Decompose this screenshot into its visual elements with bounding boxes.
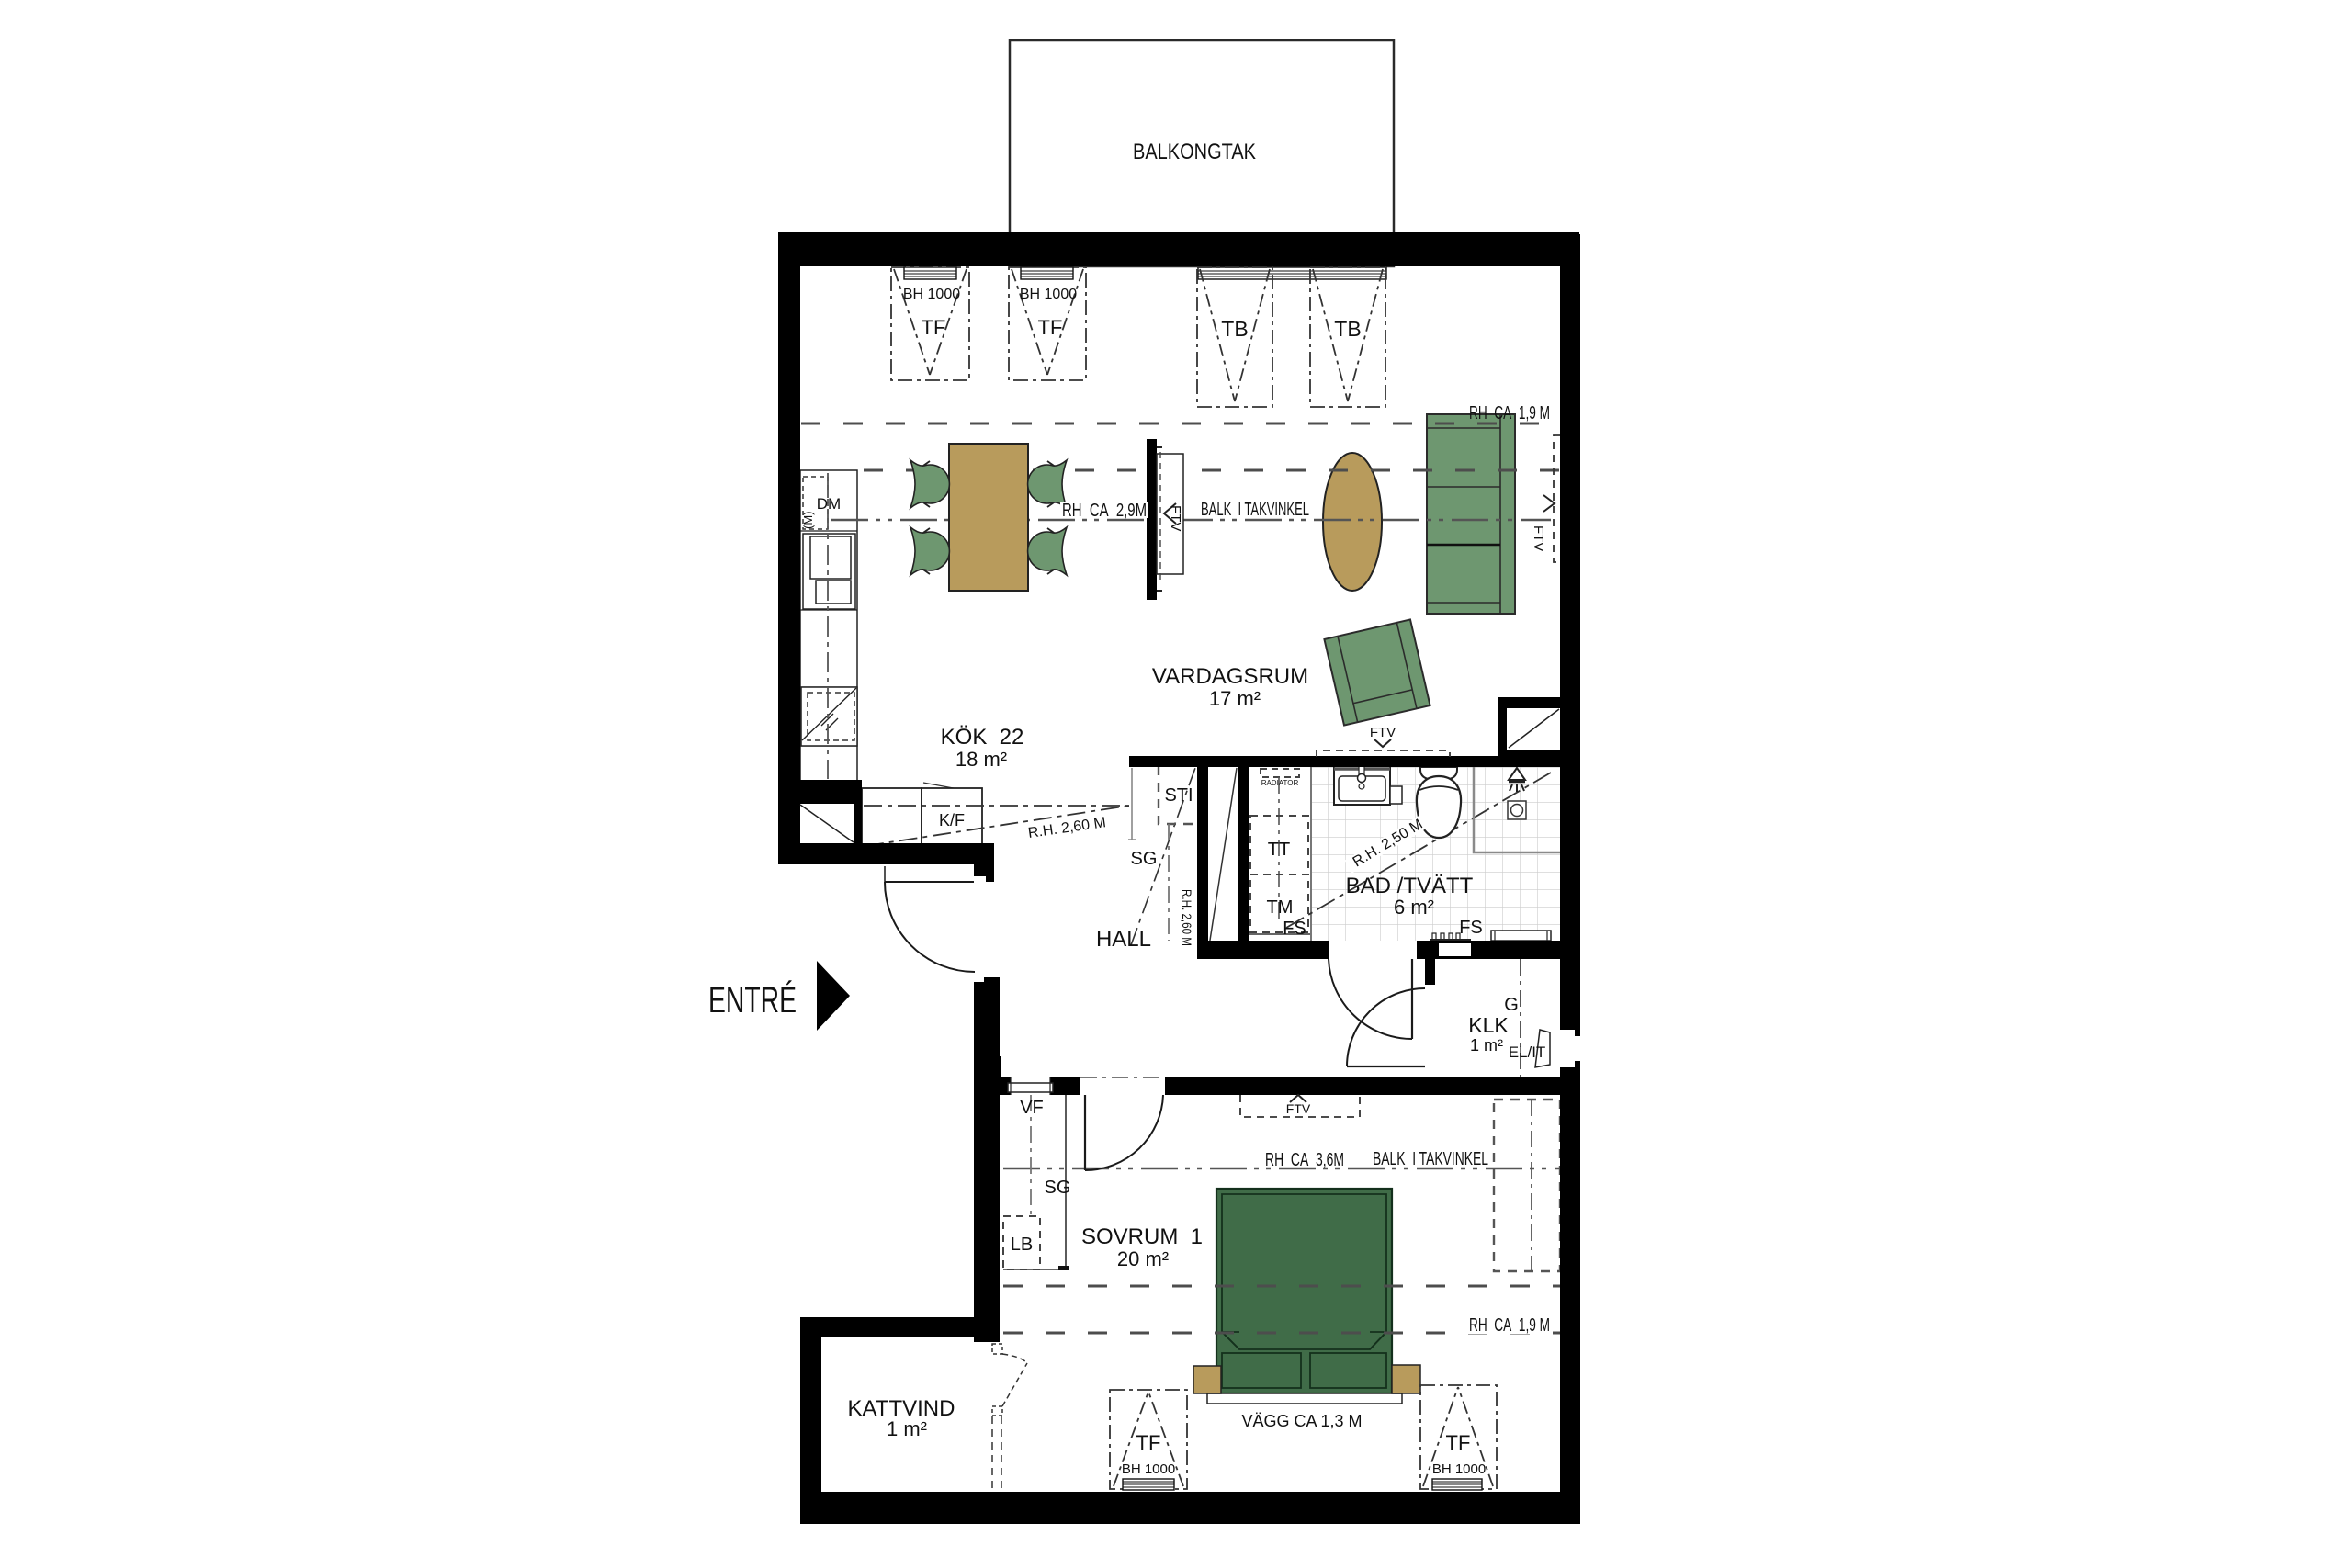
svg-text:RH CA 2,9M: RH CA 2,9M — [1062, 501, 1147, 521]
svg-text:BH 1000: BH 1000 — [1432, 1461, 1486, 1477]
svg-text:FTV: FTV — [1168, 505, 1183, 531]
svg-text:FS: FS — [1283, 919, 1306, 939]
svg-text:RH CA 1,9 M: RH CA 1,9 M — [1469, 1315, 1550, 1336]
svg-text:TM: TM — [1267, 897, 1294, 918]
svg-text:1 m²: 1 m² — [887, 1417, 927, 1440]
svg-text:BALK I TAKVINKEL: BALK I TAKVINKEL — [1373, 1149, 1488, 1169]
svg-text:K/F: K/F — [939, 811, 965, 829]
svg-text:RH CA 1,9 M: RH CA 1,9 M — [1469, 403, 1550, 423]
svg-text:LB: LB — [1011, 1235, 1033, 1255]
svg-text:EL/IT: EL/IT — [1509, 1043, 1546, 1061]
svg-text:KLK: KLK — [1468, 1013, 1509, 1037]
svg-text:BH 1000: BH 1000 — [903, 287, 960, 302]
svg-text:G: G — [1504, 995, 1519, 1015]
svg-text:RH CA 3,6M: RH CA 3,6M — [1265, 1150, 1344, 1170]
svg-text:FTV: FTV — [1531, 525, 1546, 551]
svg-text:BALK I TAKVINKEL: BALK I TAKVINKEL — [1201, 500, 1309, 520]
svg-text:BALKONGTAK: BALKONGTAK — [1133, 140, 1256, 164]
svg-text:ENTRÉ: ENTRÉ — [708, 979, 797, 1021]
svg-text:KÖK 22: KÖK 22 — [941, 725, 1024, 750]
svg-text:20 m²: 20 m² — [1117, 1247, 1169, 1270]
svg-text:TF: TF — [922, 316, 946, 339]
svg-text:SG: SG — [1131, 849, 1158, 869]
svg-text:6 m²: 6 m² — [1394, 896, 1434, 919]
svg-text:R.H. 2,60 M: R.H. 2,60 M — [1180, 889, 1194, 946]
svg-text:BAD /TVÄTT: BAD /TVÄTT — [1346, 874, 1474, 898]
svg-text:VÄGG CA 1,3 M: VÄGG CA 1,3 M — [1241, 1412, 1362, 1430]
svg-text:STI: STI — [1164, 785, 1193, 806]
svg-text:RADIATOR: RADIATOR — [1261, 779, 1299, 787]
svg-text:VF: VF — [1020, 1098, 1044, 1118]
svg-text:FTV: FTV — [1286, 1101, 1311, 1116]
svg-text:HALL: HALL — [1096, 927, 1151, 952]
svg-text:BH 1000: BH 1000 — [1122, 1461, 1175, 1477]
svg-text:TF: TF — [1446, 1431, 1471, 1454]
svg-text:TF: TF — [1136, 1431, 1161, 1454]
svg-text:BH 1000: BH 1000 — [1020, 287, 1077, 302]
svg-text:TT: TT — [1268, 840, 1290, 860]
svg-text:17 m²: 17 m² — [1209, 687, 1261, 710]
svg-text:VARDAGSRUM: VARDAGSRUM — [1152, 664, 1308, 689]
svg-text:18 m²: 18 m² — [955, 748, 1007, 771]
svg-text:SG: SG — [1045, 1178, 1071, 1198]
svg-text:TF: TF — [1038, 316, 1063, 339]
svg-text:TB: TB — [1221, 317, 1248, 341]
svg-text:FTV: FTV — [1370, 725, 1396, 740]
svg-text:FS: FS — [1459, 918, 1483, 938]
svg-text:DM: DM — [817, 495, 841, 513]
svg-text:1 m²: 1 m² — [1470, 1036, 1503, 1055]
svg-text:TB: TB — [1334, 317, 1361, 341]
svg-text:SOVRUM 1: SOVRUM 1 — [1081, 1224, 1203, 1249]
svg-text:(M): (M) — [801, 512, 815, 530]
